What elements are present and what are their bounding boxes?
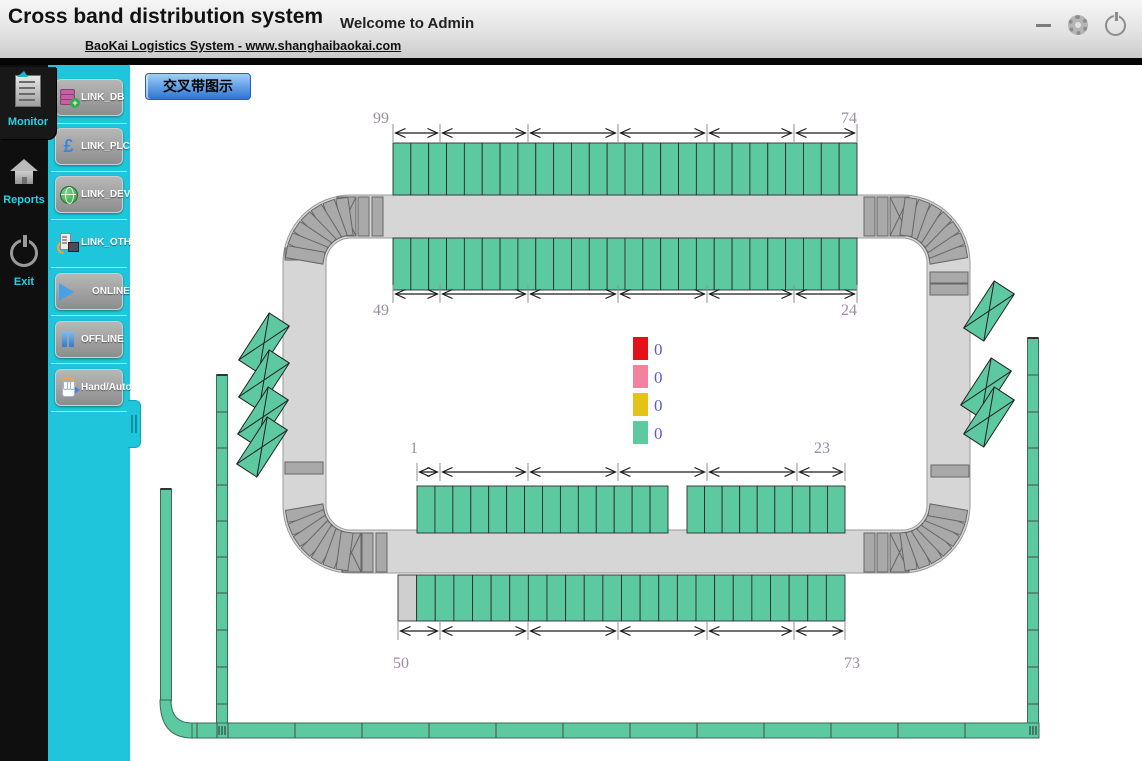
- sorter-cell: [740, 486, 758, 533]
- sorter-cell: [482, 238, 500, 290]
- sorter-cell: [571, 143, 589, 195]
- minimize-icon[interactable]: [1036, 24, 1051, 27]
- sidebar-item-label: Monitor: [0, 116, 56, 128]
- sorter-cell: [661, 238, 679, 290]
- sorter-diagram: 9974492412350730000: [130, 65, 1142, 761]
- sorter-cell: [578, 486, 596, 533]
- toolbox-button-online[interactable]: ONLINE: [55, 273, 123, 310]
- sorter-cell: [393, 238, 411, 290]
- sorter-cell: [473, 575, 492, 621]
- sorter-cell: [659, 575, 678, 621]
- sorter-cell: [750, 143, 768, 195]
- induction-chutes: [237, 281, 1015, 477]
- toolbox-button-label: OFFLINE: [81, 334, 124, 345]
- sidebar-item-label: Exit: [0, 276, 48, 288]
- sorter-cell: [393, 143, 411, 195]
- corner-slats-top-right: [864, 197, 968, 295]
- toolbox-separator: [51, 363, 127, 364]
- sorter-cell: [454, 575, 473, 621]
- sorter-cell: [810, 486, 828, 533]
- toolbox-button-label: LINK_OTH: [81, 237, 131, 248]
- grip-line: [135, 415, 137, 433]
- sidebar-item-label: Reports: [0, 194, 48, 206]
- toolbox-separator: [51, 411, 127, 412]
- legend-count: 0: [654, 424, 663, 443]
- sorter-cell: [560, 486, 578, 533]
- sorter-cell: [661, 143, 679, 195]
- sorter-cell: [827, 486, 845, 533]
- sidebar-nav: MonitorReportsExit: [0, 65, 48, 761]
- company-subtitle-link[interactable]: BaoKai Logistics System - www.shanghaiba…: [85, 39, 401, 53]
- sorter-cell: [789, 575, 808, 621]
- sorter-cell: [429, 238, 447, 290]
- sorter-cell: [543, 486, 561, 533]
- sorter-cell: [518, 143, 536, 195]
- play-icon: [59, 283, 89, 301]
- sorter-cell: [792, 486, 810, 533]
- pause-icon: [59, 330, 78, 349]
- cart-number-label: 1: [410, 440, 418, 457]
- toolbox-button-label: LINK_PLC: [81, 141, 130, 152]
- toolbox-button-link_dev[interactable]: LINK_DEV: [55, 176, 123, 213]
- sorter-cell: [500, 238, 518, 290]
- sorter-cell: [821, 238, 839, 290]
- sidebar-item-reports[interactable]: Reports: [0, 153, 48, 206]
- gear-icon[interactable]: [1068, 15, 1088, 35]
- sorter-cell: [732, 143, 750, 195]
- sorter-cell: [643, 238, 661, 290]
- sorter-cell: [589, 238, 607, 290]
- sorter-cell: [679, 143, 697, 195]
- sorter-cell: [839, 143, 857, 195]
- sidebar-item-exit[interactable]: Exit: [0, 233, 48, 288]
- welcome-message: Welcome to Admin: [340, 15, 474, 32]
- sorter-cell: [596, 486, 614, 533]
- sorter-cell: [500, 143, 518, 195]
- sidebar-item-monitor[interactable]: Monitor: [0, 67, 56, 139]
- legend-swatch: [633, 393, 648, 416]
- toolbox-button-offline[interactable]: OFFLINE: [55, 321, 123, 358]
- chute: [964, 281, 1015, 341]
- sorter-cell: [757, 486, 775, 533]
- sorter-cell: [429, 143, 447, 195]
- sorter-cell: [589, 143, 607, 195]
- toolbox-button-label: LINK_DEV: [81, 189, 130, 200]
- cart-number-label: 50: [393, 655, 409, 672]
- sorter-cell: [607, 143, 625, 195]
- sorter-cell: [786, 238, 804, 290]
- sorter-cell: [536, 143, 554, 195]
- status-legend: 0000: [633, 337, 663, 444]
- sorter-cell: [705, 486, 723, 533]
- sorter-cell: [803, 143, 821, 195]
- sorter-cell: [622, 575, 641, 621]
- sorter-cell: [687, 486, 705, 533]
- sorter-cell: [775, 486, 793, 533]
- toolbox-button-link_plc[interactable]: £LINK_PLC: [55, 128, 123, 165]
- legend-swatch: [633, 337, 648, 360]
- sorter-cell: [696, 143, 714, 195]
- sorter-cell: [411, 143, 429, 195]
- legend-swatch: [633, 365, 648, 388]
- sorter-cell: [435, 575, 454, 621]
- app-title: Cross band distribution system: [8, 5, 323, 29]
- cart-number-label: 73: [844, 655, 860, 672]
- bottom-conveyor: [160, 700, 1039, 738]
- sorter-cell: [821, 143, 839, 195]
- home-icon: [10, 159, 38, 185]
- sorter-cell: [547, 575, 566, 621]
- toolbox-button-link_oth[interactable]: LINK_OTH: [55, 224, 123, 261]
- sorter-cell: [464, 238, 482, 290]
- sorter-cell: [435, 486, 453, 533]
- sorter-cell: [632, 486, 650, 533]
- sorter-cell: [750, 238, 768, 290]
- sorter-cell: [417, 486, 435, 533]
- globe-icon: [59, 185, 78, 204]
- application-window: { "header": { "title": "Cross band distr…: [0, 0, 1142, 761]
- sorter-cell: [584, 575, 603, 621]
- sorter-cell: [722, 486, 740, 533]
- sorter-cell: [614, 486, 632, 533]
- legend-count: 0: [654, 396, 663, 415]
- sorter-cell: [771, 575, 790, 621]
- toolbox-separator: [51, 171, 127, 172]
- corner-slats-top-left: [285, 197, 383, 264]
- sorter-cell: [715, 575, 734, 621]
- sorter-cell: [768, 143, 786, 195]
- sorter-cell: [525, 486, 543, 533]
- sorter-cell: [482, 143, 500, 195]
- power-icon[interactable]: [1105, 15, 1126, 36]
- sorter-cell: [571, 238, 589, 290]
- sorter-cell: [768, 238, 786, 290]
- cart-number-label: 24: [841, 302, 857, 319]
- sorter-cell: [411, 238, 429, 290]
- legend-count: 0: [654, 368, 663, 387]
- sorter-cell: [491, 575, 510, 621]
- sorter-cell: [554, 238, 572, 290]
- legend-count: 0: [654, 340, 663, 359]
- window-controls: [1036, 10, 1126, 40]
- sorter-cell: [507, 486, 525, 533]
- header-divider: [0, 58, 1142, 65]
- database-icon: +: [59, 88, 78, 107]
- toolbox-button-link_db[interactable]: +LINK_DB: [55, 79, 123, 116]
- sorter-cell: [489, 486, 507, 533]
- sorter-cell: [786, 143, 804, 195]
- sorter-cell: [453, 486, 471, 533]
- sorter-cell: [714, 143, 732, 195]
- sorter-cell: [803, 238, 821, 290]
- toolbox-button-hand_auto[interactable]: Hand/Auto: [55, 369, 123, 406]
- grip-line: [131, 415, 133, 433]
- device-icon: [59, 233, 78, 252]
- sorter-cell: [732, 238, 750, 290]
- hand-icon: [59, 378, 78, 397]
- sorter-cell: [714, 238, 732, 290]
- cell-row-top-inner: 4924: [373, 238, 857, 319]
- cross-belt-view-tab[interactable]: 交叉带图示: [145, 73, 251, 100]
- sorter-cell: [826, 575, 845, 621]
- cart-number-label: 99: [373, 110, 389, 127]
- plc-icon: £: [59, 137, 78, 156]
- toolbox-button-label: Hand/Auto: [81, 382, 132, 393]
- legend-swatch: [633, 421, 648, 444]
- sorter-cell: [510, 575, 529, 621]
- panel-collapse-handle[interactable]: [128, 400, 141, 448]
- sorter-cell: [696, 238, 714, 290]
- sorter-cell: [518, 238, 536, 290]
- sorter-cell: [696, 575, 715, 621]
- sorter-cell: [752, 575, 771, 621]
- sorter-cell: [839, 238, 857, 290]
- sorter-cell: [471, 486, 489, 533]
- toolbox-button-label: ONLINE: [92, 286, 130, 297]
- sorter-cell: [398, 575, 417, 621]
- sorter-cell: [677, 575, 696, 621]
- toolbox-separator: [51, 123, 127, 124]
- toolbox-button-label: LINK_DB: [81, 92, 124, 103]
- sorter-cell: [447, 143, 465, 195]
- sorter-cell: [625, 143, 643, 195]
- toolbox-panel: +LINK_DB£LINK_PLCLINK_DEVLINK_OTHONLINEO…: [48, 65, 130, 761]
- cell-row-top-outer: 9974: [373, 110, 857, 195]
- power-off-icon: [10, 239, 38, 267]
- sorter-cell: [643, 143, 661, 195]
- toolbox-separator: [51, 315, 127, 316]
- sorter-cell: [464, 143, 482, 195]
- toolbox-separator: [51, 267, 127, 268]
- sorter-cell: [536, 238, 554, 290]
- title-bar: Cross band distribution system BaoKai Lo…: [0, 0, 1142, 58]
- sorter-cell: [447, 238, 465, 290]
- sorter-cell: [733, 575, 752, 621]
- sorter-cell: [554, 143, 572, 195]
- toolbox-separator: [51, 219, 127, 220]
- sorter-cell: [528, 575, 547, 621]
- sorter-cell: [417, 575, 436, 621]
- monitor-icon: [15, 75, 41, 107]
- sorter-cell: [625, 238, 643, 290]
- sorter-cell: [679, 238, 697, 290]
- cell-row-middle: 123: [410, 440, 845, 533]
- cart-number-label: 74: [841, 110, 857, 127]
- sorter-cell: [650, 486, 668, 533]
- cart-number-label: 49: [373, 302, 389, 319]
- sorter-cell: [808, 575, 827, 621]
- sorter-cell: [566, 575, 585, 621]
- sorter-cell: [603, 575, 622, 621]
- sorter-cell: [640, 575, 659, 621]
- cell-row-bottom: 5073: [393, 575, 860, 672]
- sorter-cell: [607, 238, 625, 290]
- cart-number-label: 23: [814, 440, 830, 457]
